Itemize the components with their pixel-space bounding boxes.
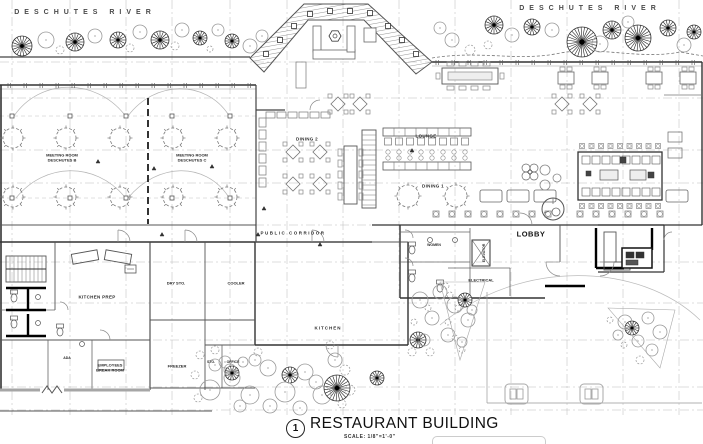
label-cooler: COOLER bbox=[227, 282, 244, 287]
meeting-room-b-line2: DESCHUTES B bbox=[46, 158, 78, 163]
break-room-line2: BREAK ROOM bbox=[96, 368, 124, 373]
door-swings bbox=[60, 100, 672, 357]
label-employees-break-room: EMPLOYEES BREAK ROOM bbox=[96, 363, 124, 372]
deck-terrace bbox=[250, 4, 432, 74]
label-meeting-room-c: MEETING ROOM DESCHUTES C bbox=[176, 153, 208, 162]
label-dry-storage: DRY STO. bbox=[167, 282, 186, 287]
label-women: WOMEN bbox=[427, 243, 441, 247]
sheet-title: RESTAURANT BUILDING bbox=[310, 415, 499, 433]
label-freezer: FREEZER bbox=[168, 365, 187, 370]
label-dining-2: DINING 2 bbox=[296, 136, 318, 141]
label-kitchen-prep: KITCHEN PREP bbox=[78, 294, 115, 299]
label-kitchen: KITCHEN bbox=[315, 325, 342, 330]
river-label-left: DESCHUTES RIVER bbox=[14, 9, 156, 17]
building-walls bbox=[0, 60, 702, 411]
label-office: OFFICE bbox=[227, 360, 240, 364]
label-elevator: ELEVATOR bbox=[482, 244, 486, 262]
label-lounge: LOUNGE bbox=[415, 133, 436, 138]
label-storage: STO. bbox=[207, 360, 215, 364]
label-dining-1: DINING 1 bbox=[422, 183, 444, 188]
label-meeting-room-b: MEETING ROOM DESCHUTES B bbox=[46, 153, 78, 162]
furniture bbox=[1, 62, 697, 404]
floor-plan-drawing bbox=[0, 0, 703, 444]
river-label-right: DESCHUTES RIVER bbox=[519, 5, 661, 13]
detail-number-bubble: 1 bbox=[286, 419, 305, 438]
label-lobby: LOBBY bbox=[517, 231, 546, 240]
label-public-corridor: PUBLIC CORRIDOR bbox=[261, 230, 326, 235]
label-ada: ADA bbox=[63, 356, 71, 360]
floor-plan-sheet: DESCHUTES RIVER DESCHUTES RIVER MEETING … bbox=[0, 0, 703, 444]
sheet-edge-mark bbox=[432, 436, 546, 444]
label-electrical: ELECTRICAL bbox=[468, 279, 493, 284]
meeting-room-c-line2: DESCHUTES C bbox=[176, 158, 208, 163]
